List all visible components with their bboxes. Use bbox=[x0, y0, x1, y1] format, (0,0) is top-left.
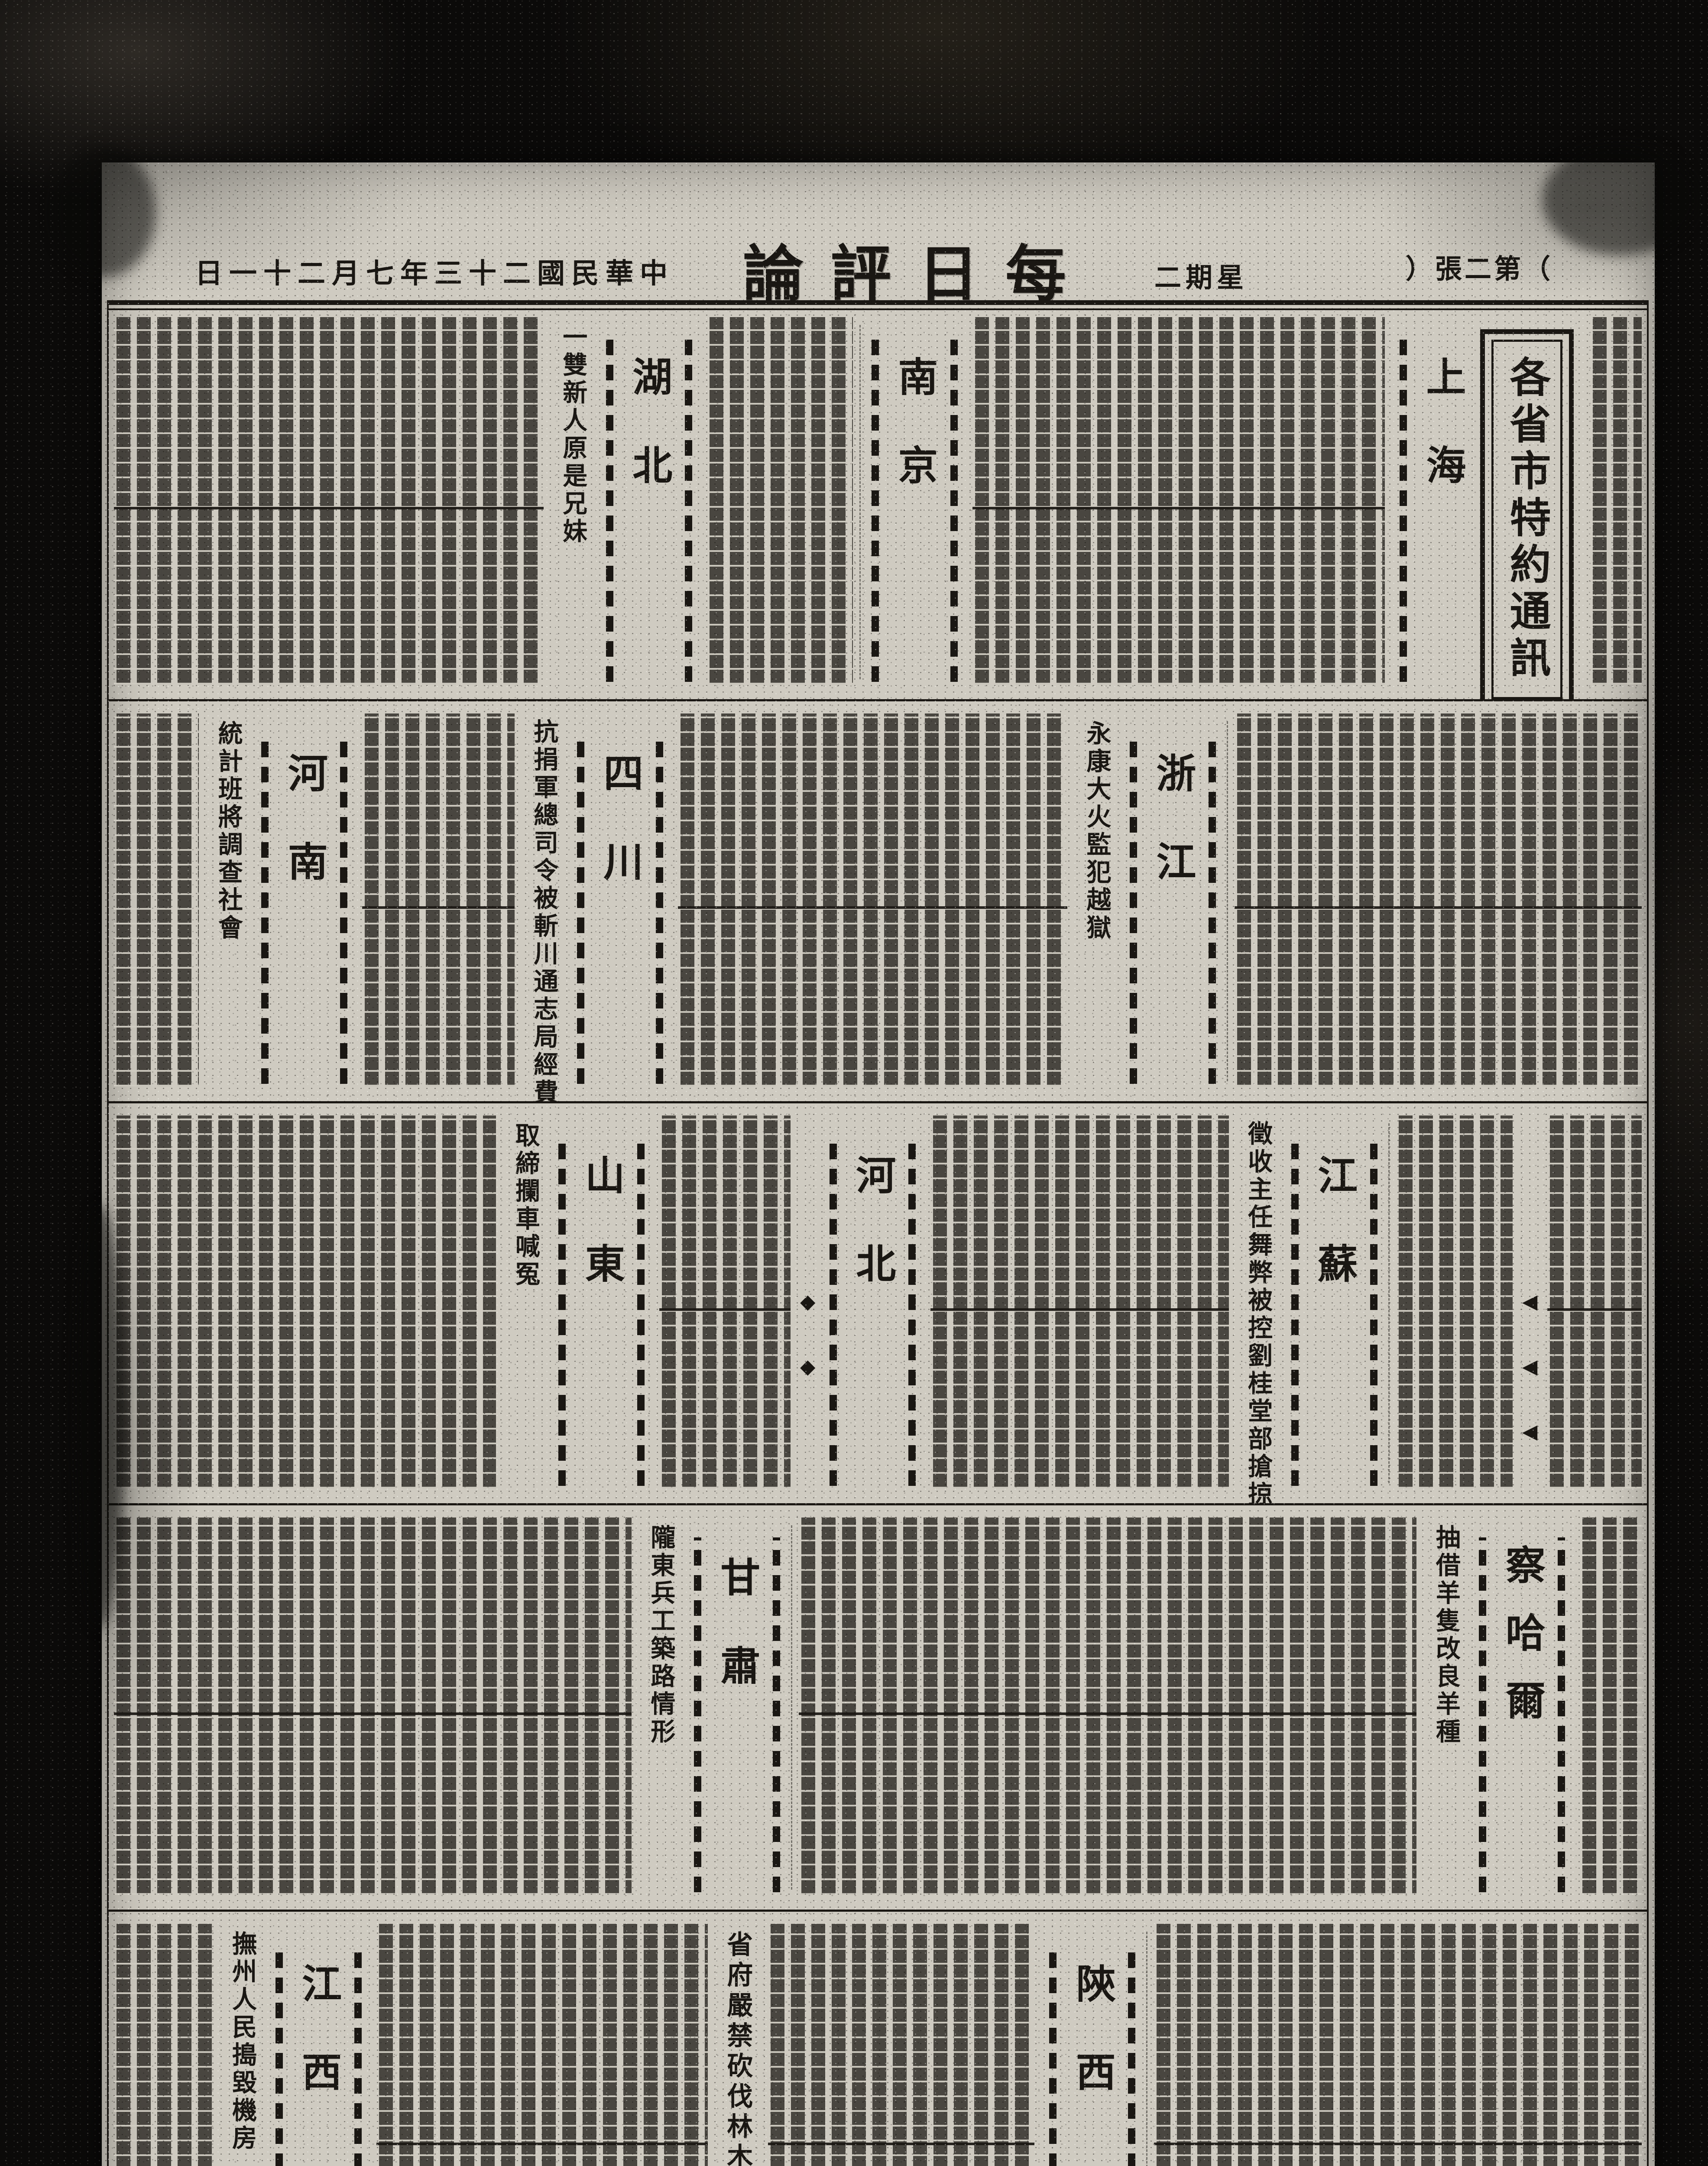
dotted-rule bbox=[1558, 1537, 1565, 1892]
dotted-rule bbox=[558, 1135, 566, 1486]
dotted-rule bbox=[577, 733, 584, 1084]
article-text-block bbox=[114, 317, 544, 684]
masthead-title: 論評日每 bbox=[743, 225, 1133, 313]
column-divider bbox=[1146, 1932, 1147, 2166]
article-text-block bbox=[1590, 317, 1642, 684]
weekday-label: 二期星 bbox=[1154, 256, 1248, 295]
diamond-markers: ◆ ◆ bbox=[796, 1103, 820, 1503]
column-divider bbox=[859, 325, 861, 679]
province-label-henan: 河南 bbox=[252, 701, 357, 1101]
content-frame: 一雙新人原是兄妹 湖北 南京 上海 各省市特約通訊 bbox=[107, 300, 1649, 2166]
headline-jiangsu-1: 徵收主任舞弊被控 bbox=[1238, 1121, 1277, 1342]
column-divider bbox=[1388, 1123, 1390, 1483]
triangle-icon: ◀ bbox=[1522, 1420, 1537, 1443]
scanned-newspaper-page: { "page": { "masthead_display": "論評日每", … bbox=[0, 0, 1708, 2166]
province-label-shaanxi: 陝西 bbox=[1040, 1912, 1145, 2166]
dotted-rule bbox=[1400, 337, 1407, 682]
dotted-rule bbox=[1370, 1135, 1377, 1486]
column-divider bbox=[791, 1525, 792, 1890]
article-text-block bbox=[768, 1924, 1035, 2166]
diamond-icon: ◆ bbox=[800, 1355, 815, 1378]
scan-artifact bbox=[74, 1204, 126, 1629]
province-label-jiangsu: 江蘇 bbox=[1282, 1103, 1387, 1503]
triangle-markers: ◀ ◀ ◀ bbox=[1518, 1103, 1542, 1503]
dotted-rule bbox=[1291, 1135, 1299, 1486]
article-text-block bbox=[114, 1115, 496, 1488]
headline-hubei: 一雙新人原是兄妹 bbox=[549, 305, 596, 699]
headline-shandong: 取締攔車喊冤 bbox=[501, 1103, 549, 1503]
article-text-block bbox=[1154, 1924, 1642, 2166]
article-text-block bbox=[114, 713, 199, 1086]
province-label-jiangxi: 江西 bbox=[266, 1912, 371, 2166]
column-divider bbox=[1227, 721, 1228, 1081]
dotted-rule bbox=[340, 733, 347, 1084]
dotted-rule bbox=[773, 1537, 780, 1892]
province-label-nanjing: 南京 bbox=[862, 305, 967, 699]
province-label-zhejiang: 浙江 bbox=[1120, 701, 1225, 1101]
dotted-rule bbox=[637, 1135, 645, 1486]
article-text-block bbox=[1580, 1517, 1642, 1895]
dotted-rule bbox=[950, 337, 958, 682]
diamond-icon: ◆ bbox=[800, 1290, 815, 1313]
article-text-block bbox=[376, 1924, 708, 2166]
headline-shaanxi: 省府嚴禁砍伐林木 bbox=[713, 1912, 763, 2166]
dotted-rule bbox=[685, 337, 692, 682]
headline-group-jiangsu: 徵收主任舞弊被控 劉桂堂部搶掠沿海 bbox=[1234, 1103, 1282, 1503]
dotted-rule bbox=[1479, 1537, 1486, 1892]
headline-jiangsu-2: 劉桂堂部搶掠沿海 bbox=[1238, 1342, 1277, 1505]
province-label-hebei: 河北 bbox=[820, 1103, 925, 1503]
news-band-3: 取締攔車喊冤 山東 ◆ ◆ 河北 徵收主任舞弊被控 劉桂堂部搶掠沿海 bbox=[109, 1103, 1647, 1505]
headline-sichuan-1: 抗捐軍總司令被斬 bbox=[524, 719, 563, 940]
news-band-5: 撫州人民搗毀機房 江西 省府嚴禁砍伐林木 陝西 bbox=[109, 1912, 1647, 2166]
province-label-hubei: 湖北 bbox=[596, 305, 702, 699]
dotted-rule bbox=[275, 1944, 283, 2166]
dotted-rule bbox=[1209, 733, 1216, 1084]
dotted-rule bbox=[908, 1135, 916, 1486]
article-text-block bbox=[114, 1924, 213, 2166]
headline-jiangxi: 撫州人民搗毀機房 bbox=[218, 1912, 266, 2166]
dotted-rule bbox=[261, 733, 269, 1084]
headline-sichuan-2: 川通志局經費困難 bbox=[524, 940, 563, 1103]
page-number-marker: ）張二第（ bbox=[1406, 247, 1553, 286]
province-label-shanghai: 上海 bbox=[1390, 305, 1474, 699]
news-band-4: 隴東兵工築路情形 甘肅 抽借羊隻改良羊種 察哈爾 bbox=[109, 1505, 1647, 1912]
section-title: 各省市特約通訊 bbox=[1497, 356, 1556, 683]
article-text-block bbox=[362, 713, 515, 1086]
triangle-icon: ◀ bbox=[1522, 1355, 1537, 1378]
dotted-rule bbox=[354, 1944, 362, 2166]
headline-group-sichuan: 抗捐軍總司令被斬 川通志局經費困難 bbox=[520, 701, 567, 1101]
article-text-block bbox=[1235, 713, 1642, 1086]
article-text-block bbox=[930, 1115, 1229, 1488]
dotted-rule bbox=[656, 733, 663, 1084]
dotted-rule bbox=[1049, 1944, 1057, 2166]
dotted-rule bbox=[830, 1135, 837, 1486]
article-text-block bbox=[659, 1115, 790, 1488]
headline-zhejiang: 永康大火監犯越獄 bbox=[1073, 701, 1120, 1101]
article-text-block bbox=[972, 317, 1385, 684]
headline-chahar: 抽借羊隻改良羊種 bbox=[1422, 1505, 1469, 1910]
province-label-chahar: 察哈爾 bbox=[1469, 1505, 1575, 1910]
dotted-rule bbox=[606, 337, 613, 682]
dotted-rule bbox=[694, 1537, 701, 1892]
article-text-block bbox=[678, 713, 1067, 1086]
province-label-shandong: 山東 bbox=[549, 1103, 654, 1503]
scan-artifact bbox=[52, 147, 156, 277]
headline-gansu: 隴東兵工築路情形 bbox=[637, 1505, 684, 1910]
province-label-gansu: 甘肅 bbox=[684, 1505, 790, 1910]
triangle-icon: ◀ bbox=[1522, 1290, 1537, 1313]
article-text-block bbox=[799, 1517, 1417, 1895]
news-band-2: 統計班將調查社會 河南 抗捐軍總司令被斬 川通志局經費困難 四川 永康大火監犯越… bbox=[109, 701, 1647, 1103]
article-text-block bbox=[114, 1517, 632, 1895]
dotted-rule bbox=[1128, 1944, 1135, 2166]
headline-henan: 統計班將調查社會 bbox=[204, 701, 252, 1101]
article-text-block bbox=[1396, 1115, 1513, 1488]
province-label-sichuan: 四川 bbox=[567, 701, 673, 1101]
dotted-rule bbox=[1130, 733, 1137, 1084]
news-band-1: 一雙新人原是兄妹 湖北 南京 上海 各省市特約通訊 bbox=[109, 305, 1647, 701]
article-text-block bbox=[1547, 1115, 1642, 1488]
section-title-box: 各省市特約通訊 bbox=[1480, 329, 1574, 701]
dotted-rule bbox=[872, 337, 879, 682]
newspaper-sheet: 日一十二月七年三十二國民華中 論評日每 二期星 ）張二第（ 一雙新人原是兄妹 湖… bbox=[102, 162, 1655, 2166]
article-text-block bbox=[707, 317, 853, 684]
dateline: 日一十二月七年三十二國民華中 bbox=[195, 251, 674, 291]
scan-artifact bbox=[1542, 143, 1698, 256]
